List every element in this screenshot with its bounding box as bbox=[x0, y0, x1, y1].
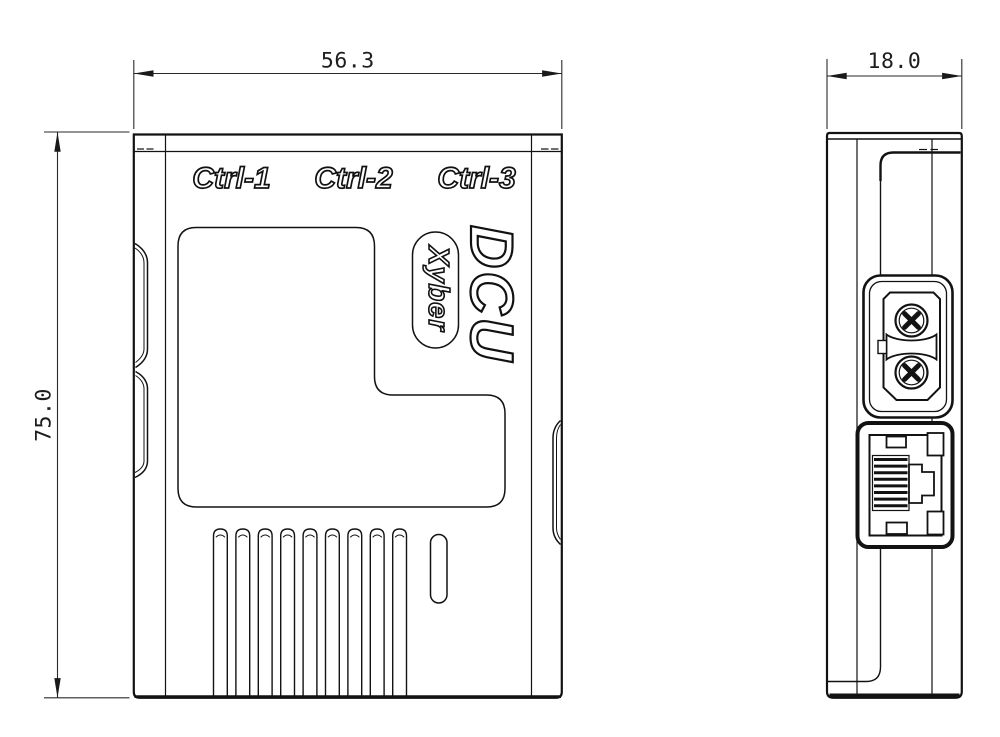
side-view bbox=[827, 133, 962, 698]
arrowhead-left-icon bbox=[134, 70, 154, 76]
xt30-power-connector bbox=[864, 276, 953, 418]
dimension-side-depth: 18.0 bbox=[827, 49, 962, 129]
arrowhead-bottom-icon bbox=[54, 678, 60, 698]
arrowhead-top-icon bbox=[54, 132, 60, 152]
port-label-ctrl-3: Ctrl-3 bbox=[437, 162, 516, 195]
brand-xyber: Xyber bbox=[422, 244, 454, 332]
dimension-front-height: 75.0 bbox=[32, 132, 130, 698]
port-label-ctrl-2: Ctrl-2 bbox=[314, 162, 393, 195]
dimension-front-width: 56.3 bbox=[134, 49, 562, 130]
technical-drawing-canvas: 56.3 18.0 75.0 bbox=[0, 0, 1000, 737]
arrowhead-left-icon bbox=[827, 73, 847, 79]
rj45-corner-tab-top bbox=[928, 433, 944, 456]
front-view: Ctrl-1 Ctrl-2 Ctrl-3 DCU Xyber bbox=[134, 135, 562, 698]
port-label-ctrl-1: Ctrl-1 bbox=[192, 162, 270, 195]
dimension-value-depth: 18.0 bbox=[868, 49, 922, 74]
arrowhead-right-icon bbox=[542, 70, 562, 76]
rj45-corner-tab-bottom bbox=[928, 512, 944, 535]
rj45-top-tab bbox=[887, 437, 907, 448]
dimension-value-height: 75.0 bbox=[32, 388, 57, 442]
rj45-bottom-tab bbox=[887, 523, 908, 535]
dimension-value-width: 56.3 bbox=[321, 49, 375, 74]
arrowhead-right-icon bbox=[942, 73, 962, 79]
logo-dcu: DCU bbox=[458, 225, 525, 364]
rj45-ethernet-port bbox=[858, 423, 953, 547]
power-key-tab bbox=[878, 341, 887, 354]
